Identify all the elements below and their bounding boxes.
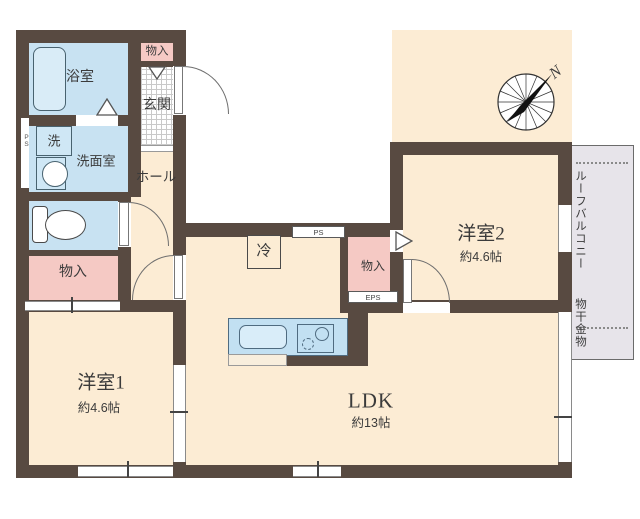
bathroom-door-opening <box>76 115 118 126</box>
ldk-size-label: 約13帖 <box>352 417 391 430</box>
refrigerator-label: 冷 <box>256 245 271 260</box>
room2-name-label: 洋室2 <box>457 225 505 244</box>
closet-mid-label: 物入 <box>59 266 87 280</box>
entrance-step <box>141 145 173 152</box>
wall <box>16 30 29 478</box>
washroom-label: 洗面室 <box>76 155 115 168</box>
kitchen-stove <box>297 324 334 353</box>
wall <box>29 250 118 256</box>
ps-niche <box>21 118 29 188</box>
window-tick <box>317 461 319 477</box>
eps-shaft: EPS <box>348 291 398 303</box>
wall <box>390 142 572 155</box>
hall-door-leaf <box>174 255 183 299</box>
door-tick <box>71 297 73 313</box>
balcony-label: ルーフバルコニー 物干金物 <box>572 170 588 350</box>
ps-shaft-top-label: PS <box>313 228 323 237</box>
vanity-sink <box>42 161 68 187</box>
floor-plan: ルーフバルコニー 物干金物 <box>0 0 640 519</box>
room1-sliding-door <box>173 365 186 462</box>
wall <box>16 192 131 201</box>
ldk-name-label: LDK <box>348 391 394 412</box>
front-door-leaf <box>174 66 183 114</box>
balcony-label-line1: ルーフバルコニー <box>572 170 588 270</box>
eps-shaft-label: EPS <box>365 293 380 302</box>
room1-size-label: 約4.6帖 <box>78 402 120 415</box>
ldk-east-window <box>558 312 572 462</box>
window-tick <box>127 461 129 477</box>
washer-label: 洗 <box>47 135 60 148</box>
bathroom-label: 浴室 <box>66 71 94 85</box>
room2-door-leaf <box>403 259 412 303</box>
wall <box>348 304 368 360</box>
room1-name-label: 洋室1 <box>77 374 125 393</box>
room2-size-label: 約4.6帖 <box>460 251 502 264</box>
ps-shaft-left-label: PS <box>21 134 30 148</box>
balcony-label-line2: 物干金物 <box>572 270 588 348</box>
room1-window <box>78 466 173 477</box>
closet-top-door-marker <box>148 66 166 80</box>
room2-door-opening <box>403 302 450 313</box>
closet-center-label: 物入 <box>361 260 385 272</box>
toilet-bowl <box>45 210 86 240</box>
hall-label: ホール <box>136 170 177 184</box>
door-tick <box>170 411 188 413</box>
bathtub <box>33 47 66 111</box>
wall <box>390 142 403 312</box>
stove-burner <box>315 327 329 341</box>
ps-shaft-top: PS <box>292 226 345 238</box>
compass-icon <box>495 68 561 134</box>
entrance-label: 玄関 <box>143 99 171 113</box>
window-tick <box>554 416 572 418</box>
wall <box>16 30 186 43</box>
toilet-door-leaf <box>119 202 129 246</box>
bathroom-door-marker <box>96 98 118 116</box>
closet-center-door-marker <box>395 231 413 251</box>
balcony-dotted-line-top <box>576 162 628 164</box>
wall <box>340 237 348 300</box>
closet-top-label: 物入 <box>146 46 169 58</box>
stove-burner-dashed <box>302 338 314 350</box>
kitchen-counter-front <box>228 354 287 366</box>
kitchen-sink <box>239 325 287 349</box>
room2-window <box>558 205 572 252</box>
